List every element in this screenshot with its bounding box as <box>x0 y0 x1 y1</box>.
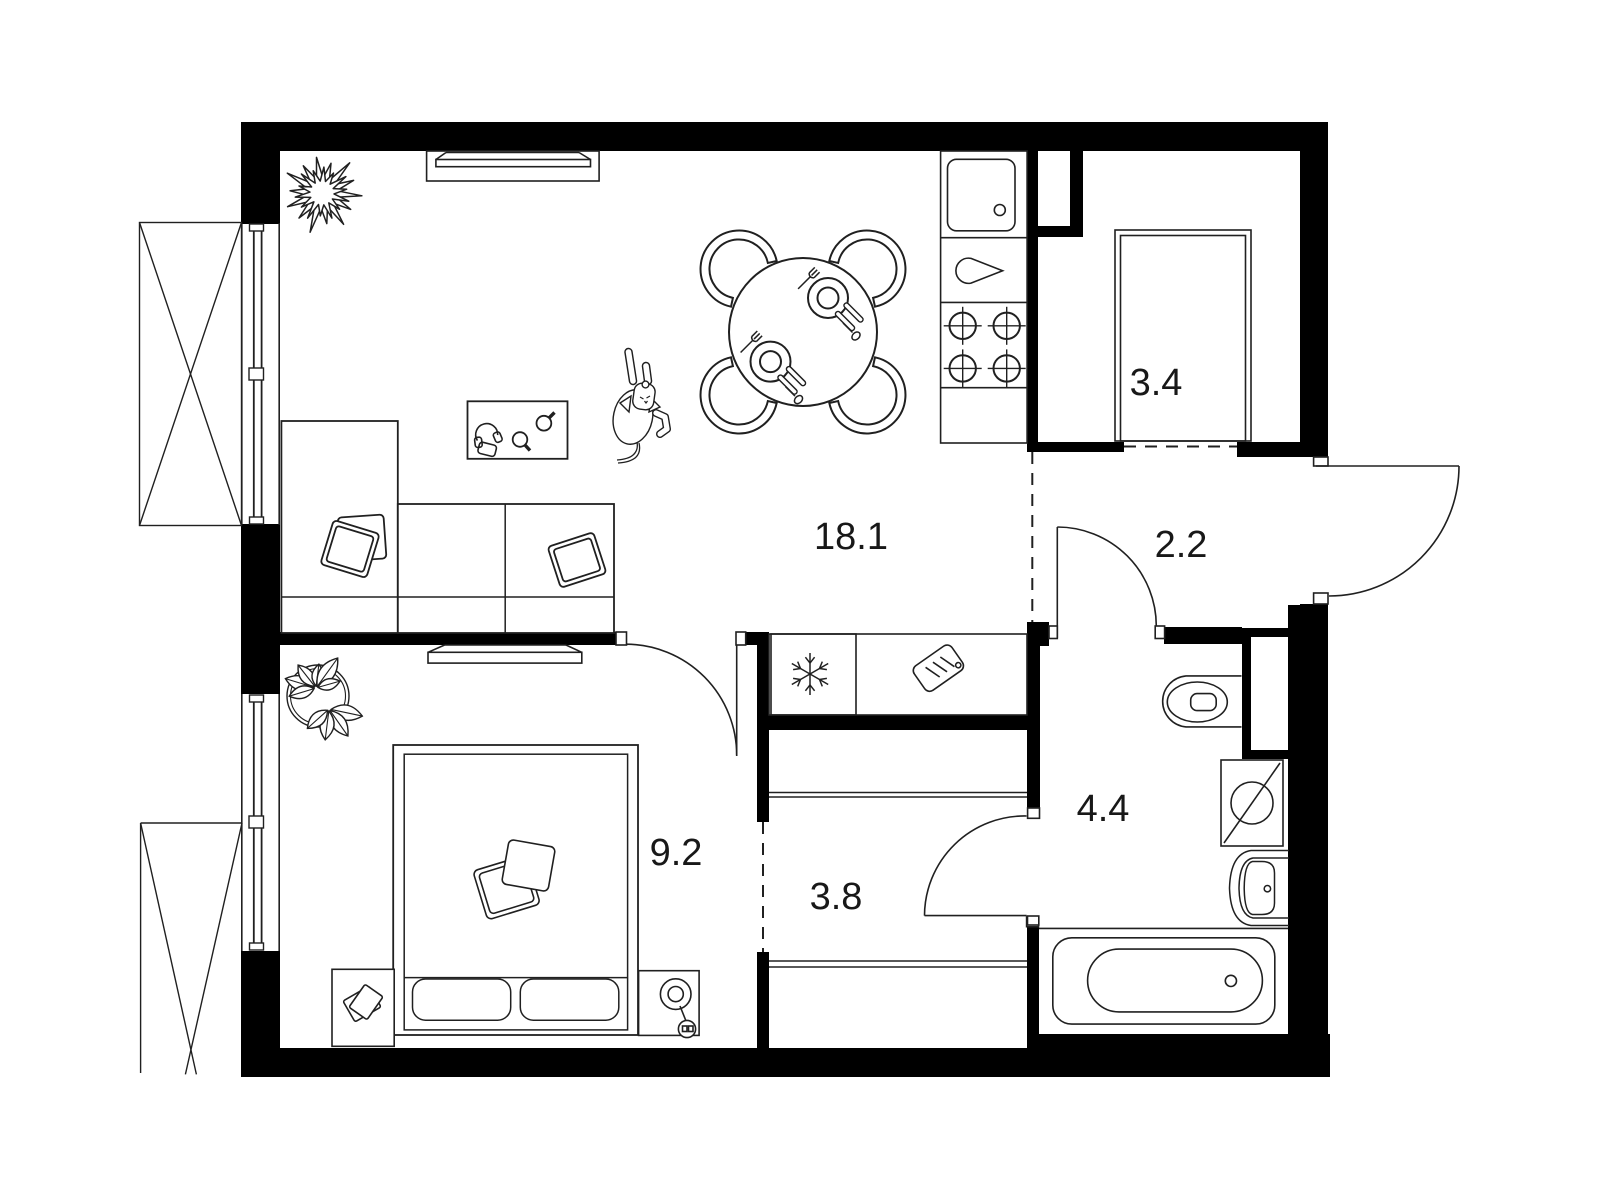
svg-text:9.2: 9.2 <box>650 832 703 874</box>
svg-text:18.1: 18.1 <box>814 516 888 558</box>
svg-text:3.8: 3.8 <box>810 876 863 918</box>
svg-text:2.2: 2.2 <box>1155 524 1208 566</box>
svg-text:4.4: 4.4 <box>1077 788 1130 830</box>
svg-text:3.4: 3.4 <box>1130 362 1183 404</box>
